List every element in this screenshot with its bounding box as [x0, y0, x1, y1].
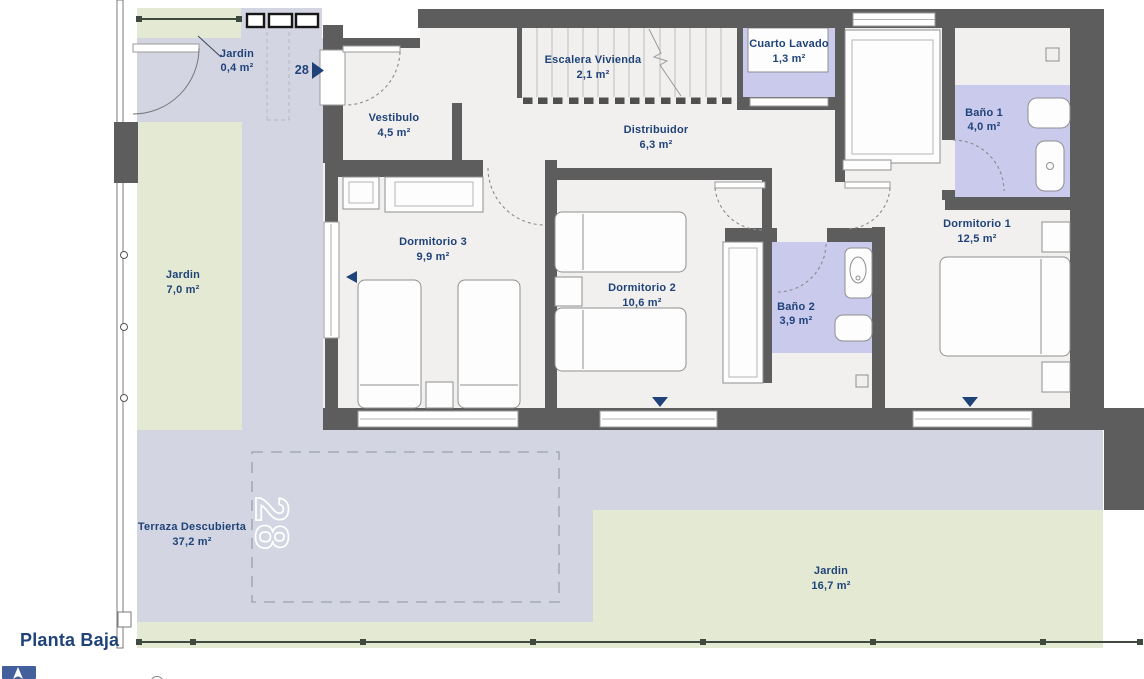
room-area: 16,7 m² [811, 580, 850, 592]
toilet-bath1 [1036, 141, 1064, 191]
front-door-leaf [343, 46, 400, 52]
room-area: 6,3 m² [640, 139, 673, 151]
room-area: 7,0 m² [167, 284, 200, 296]
room-area: 0,4 m² [221, 62, 254, 74]
room-area: 37,2 m² [172, 536, 211, 548]
rear-garden-zone [593, 510, 1103, 648]
bathtub-bath1 [1028, 98, 1070, 128]
room-area: 3,9 m² [780, 315, 813, 327]
floor-plan-svg: 28 [0, 0, 1144, 679]
hall-closet [845, 30, 940, 163]
room-label: Baño 1 [965, 107, 1003, 119]
bed-dorm2-b [555, 308, 686, 371]
room-label: Escalera Vivienda [545, 54, 642, 66]
room-area: 4,0 m² [968, 121, 1001, 133]
bed-dorm2-a [555, 212, 686, 272]
left-fence [114, 0, 138, 648]
room-area: 1,3 m² [773, 53, 806, 65]
sink-bath2 [845, 248, 872, 298]
front-garden-strip [137, 8, 241, 38]
north-arrow-icon [2, 666, 36, 679]
washer-unit [748, 28, 828, 72]
room-label: Jardin [166, 269, 200, 281]
room-label: Jardin [220, 48, 254, 60]
hall-door-slab [843, 160, 891, 170]
room-label: Dormitorio 1 [943, 218, 1011, 230]
floor-plan-canvas: 28 [0, 0, 1144, 679]
room-area: 10,6 m² [622, 297, 661, 309]
room-area: 12,5 m² [957, 233, 996, 245]
room-label: Distribuidor [624, 124, 689, 136]
room-label: Vestibulo [369, 112, 420, 124]
fence-pillar [114, 122, 138, 183]
room-label: Dormitorio 2 [608, 282, 676, 294]
front-door-opening [320, 50, 345, 105]
room-area: 4,5 m² [378, 127, 411, 139]
nightstand-dorm2 [555, 277, 582, 306]
entry-vent-windows [247, 14, 318, 27]
room-label: Jardin [814, 565, 848, 577]
hall-door-leaf [845, 182, 890, 188]
room-label: Dormitorio 3 [399, 236, 467, 248]
bathtub-bath2 [835, 315, 872, 341]
nightstand-dorm1-b [1042, 362, 1070, 392]
nightstand-dorm1-a [1042, 222, 1070, 252]
room-label: Terraza Descubierta [138, 521, 247, 533]
room-area: 2,1 m² [577, 69, 610, 81]
nightstand-dorm3 [426, 382, 453, 408]
room-label: Cuarto Lavado [749, 38, 829, 50]
page-title: Planta Baja [20, 630, 120, 650]
side-window [324, 222, 339, 338]
side-path-zone [242, 122, 323, 430]
bed-single-2 [458, 280, 520, 408]
laundry-window [750, 98, 828, 106]
unit-number: 28 [295, 63, 309, 77]
room-area: 9,9 m² [417, 251, 450, 263]
dorm2-door-leaf [715, 182, 765, 188]
bed-single-1 [358, 280, 421, 408]
bed-double-dorm1 [940, 257, 1070, 356]
unit-watermark: 28 [246, 496, 298, 551]
room-label: Baño 2 [777, 301, 815, 313]
